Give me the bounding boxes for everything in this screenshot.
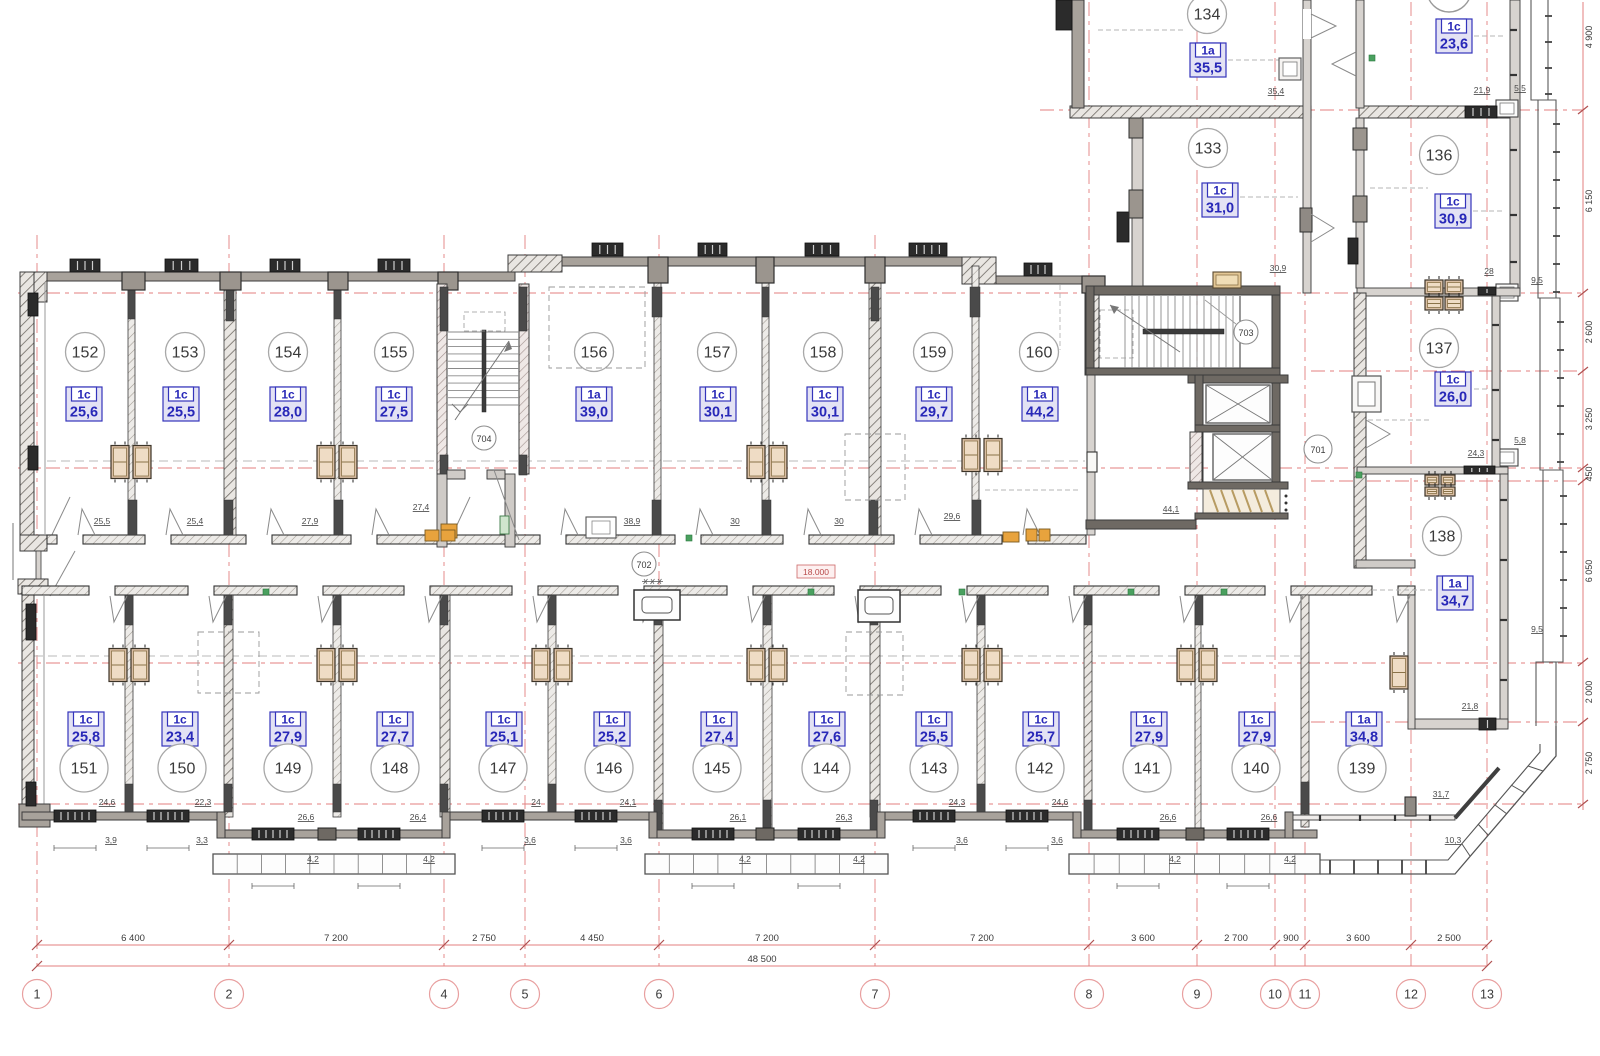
svg-text:13: 13 — [1480, 988, 1494, 1002]
svg-text:149: 149 — [275, 761, 302, 778]
svg-text:31,0: 31,0 — [1206, 201, 1234, 217]
svg-text:147: 147 — [490, 761, 517, 778]
svg-text:35,5: 35,5 — [1194, 61, 1222, 77]
svg-text:5,5: 5,5 — [1514, 83, 1526, 93]
svg-text:28: 28 — [1484, 266, 1494, 276]
svg-text:1c: 1c — [1213, 184, 1227, 198]
svg-text:3,9: 3,9 — [105, 835, 117, 845]
svg-text:146: 146 — [596, 761, 623, 778]
svg-text:144: 144 — [813, 761, 840, 778]
svg-text:143: 143 — [921, 761, 948, 778]
svg-text:9: 9 — [1194, 988, 1201, 1002]
svg-text:154: 154 — [275, 345, 302, 362]
svg-text:22,3: 22,3 — [195, 797, 212, 807]
svg-text:1c: 1c — [605, 713, 619, 727]
svg-text:27,9: 27,9 — [274, 730, 302, 746]
svg-text:4,2: 4,2 — [853, 854, 865, 864]
svg-text:44,2: 44,2 — [1026, 405, 1054, 421]
svg-text:30: 30 — [730, 516, 740, 526]
svg-text:1c: 1c — [1446, 195, 1460, 209]
svg-text:1a: 1a — [1033, 388, 1047, 402]
svg-text:2: 2 — [226, 988, 233, 1002]
svg-text:3,6: 3,6 — [524, 835, 536, 845]
svg-text:27,4: 27,4 — [413, 502, 430, 512]
svg-text:10: 10 — [1268, 988, 1282, 1002]
svg-text:30: 30 — [834, 516, 844, 526]
svg-text:27,6: 27,6 — [813, 730, 841, 746]
svg-text:26,1: 26,1 — [730, 812, 747, 822]
svg-text:4,2: 4,2 — [423, 854, 435, 864]
svg-text:30,9: 30,9 — [1439, 212, 1467, 228]
svg-text:3,6: 3,6 — [956, 835, 968, 845]
svg-text:24,3: 24,3 — [949, 797, 966, 807]
svg-text:24,3: 24,3 — [1468, 448, 1485, 458]
svg-text:25,1: 25,1 — [490, 730, 518, 746]
svg-text:138: 138 — [1429, 529, 1456, 546]
svg-text:21,9: 21,9 — [1474, 85, 1491, 95]
svg-text:29,7: 29,7 — [920, 405, 948, 421]
svg-text:3 250: 3 250 — [1584, 408, 1594, 431]
svg-text:4: 4 — [441, 988, 448, 1002]
svg-text:155: 155 — [381, 345, 408, 362]
svg-text:26,6: 26,6 — [1261, 812, 1278, 822]
svg-text:1c: 1c — [1142, 713, 1156, 727]
svg-text:25,5: 25,5 — [920, 730, 948, 746]
svg-text:27,9: 27,9 — [1243, 730, 1271, 746]
svg-text:704: 704 — [476, 434, 491, 444]
svg-text:10,3: 10,3 — [1445, 835, 1462, 845]
svg-text:1: 1 — [34, 988, 41, 1002]
svg-text:9,5: 9,5 — [1531, 275, 1543, 285]
svg-text:1c: 1c — [820, 713, 834, 727]
svg-text:134: 134 — [1194, 7, 1221, 24]
svg-text:1c: 1c — [1446, 373, 1460, 387]
svg-text:12: 12 — [1404, 988, 1418, 1002]
svg-text:3 600: 3 600 — [1131, 933, 1155, 944]
svg-text:25,4: 25,4 — [187, 516, 204, 526]
svg-text:4,2: 4,2 — [1284, 854, 1296, 864]
svg-text:1c: 1c — [927, 713, 941, 727]
svg-text:6 050: 6 050 — [1584, 560, 1594, 583]
svg-text:156: 156 — [581, 345, 608, 362]
svg-text:27,5: 27,5 — [380, 405, 408, 421]
svg-text:3,3: 3,3 — [196, 835, 208, 845]
svg-text:4,2: 4,2 — [739, 854, 751, 864]
svg-text:2 500: 2 500 — [1437, 933, 1461, 944]
svg-text:26,6: 26,6 — [298, 812, 315, 822]
svg-text:136: 136 — [1426, 148, 1453, 165]
svg-text:1a: 1a — [587, 388, 601, 402]
svg-text:38,9: 38,9 — [624, 516, 641, 526]
svg-text:4,2: 4,2 — [1169, 854, 1181, 864]
svg-text:26,3: 26,3 — [836, 812, 853, 822]
svg-text:25,8: 25,8 — [72, 730, 100, 746]
svg-text:39,0: 39,0 — [580, 405, 608, 421]
svg-text:150: 150 — [169, 761, 196, 778]
svg-text:6: 6 — [656, 988, 663, 1002]
svg-text:21,8: 21,8 — [1462, 701, 1479, 711]
svg-text:26,4: 26,4 — [410, 812, 427, 822]
svg-text:158: 158 — [810, 345, 837, 362]
svg-text:1c: 1c — [927, 388, 941, 402]
svg-text:1c: 1c — [1034, 713, 1048, 727]
svg-text:28,0: 28,0 — [274, 405, 302, 421]
svg-text:23,6: 23,6 — [1440, 37, 1468, 53]
svg-text:3,6: 3,6 — [620, 835, 632, 845]
svg-text:1c: 1c — [1250, 713, 1264, 727]
svg-text:24,1: 24,1 — [620, 797, 637, 807]
svg-text:31,7: 31,7 — [1433, 789, 1450, 799]
svg-text:133: 133 — [1195, 141, 1222, 158]
svg-text:26,6: 26,6 — [1160, 812, 1177, 822]
svg-text:27,7: 27,7 — [381, 730, 409, 746]
svg-text:9,5: 9,5 — [1531, 624, 1543, 634]
svg-text:153: 153 — [172, 345, 199, 362]
svg-text:11: 11 — [1299, 988, 1312, 1002]
svg-text:8: 8 — [1086, 988, 1093, 1002]
svg-text:1c: 1c — [174, 388, 188, 402]
svg-text:25,7: 25,7 — [1027, 730, 1055, 746]
svg-text:1c: 1c — [497, 713, 511, 727]
svg-text:1a: 1a — [1201, 44, 1215, 58]
svg-text:25,5: 25,5 — [167, 405, 195, 421]
svg-text:1c: 1c — [1447, 20, 1461, 34]
svg-text:2 750: 2 750 — [1584, 752, 1594, 775]
svg-text:24: 24 — [531, 797, 541, 807]
svg-text:148: 148 — [382, 761, 409, 778]
svg-text:3 600: 3 600 — [1346, 933, 1370, 944]
svg-text:450: 450 — [1584, 466, 1594, 481]
svg-text:142: 142 — [1027, 761, 1054, 778]
svg-text:2 750: 2 750 — [472, 933, 496, 944]
svg-text:140: 140 — [1243, 761, 1270, 778]
svg-text:137: 137 — [1426, 341, 1453, 358]
svg-text:24,6: 24,6 — [99, 797, 116, 807]
svg-text:2 600: 2 600 — [1584, 321, 1594, 344]
svg-text:27,4: 27,4 — [705, 730, 733, 746]
svg-text:701: 701 — [1310, 445, 1325, 455]
svg-text:157: 157 — [704, 345, 731, 362]
svg-text:26,0: 26,0 — [1439, 390, 1467, 406]
svg-text:18.000: 18.000 — [803, 567, 829, 577]
svg-text:35,4: 35,4 — [1268, 86, 1285, 96]
svg-text:1c: 1c — [281, 388, 295, 402]
svg-text:25,6: 25,6 — [70, 405, 98, 421]
svg-text:1c: 1c — [818, 388, 832, 402]
svg-text:160: 160 — [1026, 345, 1053, 362]
svg-text:27,9: 27,9 — [1135, 730, 1163, 746]
svg-text:1c: 1c — [711, 388, 725, 402]
svg-text:1a: 1a — [1357, 713, 1371, 727]
svg-text:141: 141 — [1134, 761, 1161, 778]
svg-text:3,6: 3,6 — [1051, 835, 1063, 845]
svg-text:30,1: 30,1 — [811, 405, 839, 421]
svg-text:1c: 1c — [388, 713, 402, 727]
svg-text:7 200: 7 200 — [324, 933, 348, 944]
svg-text:1a: 1a — [1448, 577, 1462, 591]
svg-text:152: 152 — [72, 345, 99, 362]
svg-text:6 400: 6 400 — [121, 933, 145, 944]
svg-text:27,9: 27,9 — [302, 516, 319, 526]
svg-text:1c: 1c — [173, 713, 187, 727]
svg-text:34,8: 34,8 — [1350, 730, 1378, 746]
svg-text:159: 159 — [920, 345, 947, 362]
svg-text:145: 145 — [704, 761, 731, 778]
svg-text:900: 900 — [1283, 933, 1299, 944]
svg-text:25,2: 25,2 — [598, 730, 626, 746]
svg-text:2 700: 2 700 — [1224, 933, 1248, 944]
svg-text:44,1: 44,1 — [1163, 504, 1180, 514]
svg-text:1c: 1c — [79, 713, 93, 727]
svg-text:23,4: 23,4 — [166, 730, 194, 746]
svg-text:6 150: 6 150 — [1584, 190, 1594, 213]
svg-text:30,9: 30,9 — [1270, 263, 1287, 273]
svg-text:4,2: 4,2 — [307, 854, 319, 864]
svg-text:25,5: 25,5 — [94, 516, 111, 526]
svg-text:5: 5 — [522, 988, 529, 1002]
svg-text:702: 702 — [636, 560, 651, 570]
svg-text:2 000: 2 000 — [1584, 681, 1594, 704]
svg-text:703: 703 — [1238, 328, 1253, 338]
svg-text:4 900: 4 900 — [1584, 26, 1594, 49]
svg-text:151: 151 — [71, 761, 98, 778]
svg-text:5,8: 5,8 — [1514, 435, 1526, 445]
svg-text:1c: 1c — [281, 713, 295, 727]
svg-text:7: 7 — [872, 988, 879, 1002]
svg-text:139: 139 — [1349, 761, 1376, 778]
svg-text:4 450: 4 450 — [580, 933, 604, 944]
svg-text:1c: 1c — [387, 388, 401, 402]
svg-text:1c: 1c — [77, 388, 91, 402]
svg-text:30,1: 30,1 — [704, 405, 732, 421]
svg-text:7 200: 7 200 — [755, 933, 779, 944]
svg-text:1c: 1c — [712, 713, 726, 727]
svg-text:24,6: 24,6 — [1052, 797, 1069, 807]
svg-text:7 200: 7 200 — [970, 933, 994, 944]
svg-text:48 500: 48 500 — [747, 954, 776, 965]
svg-text:29,6: 29,6 — [944, 511, 961, 521]
svg-text:34,7: 34,7 — [1441, 594, 1469, 610]
